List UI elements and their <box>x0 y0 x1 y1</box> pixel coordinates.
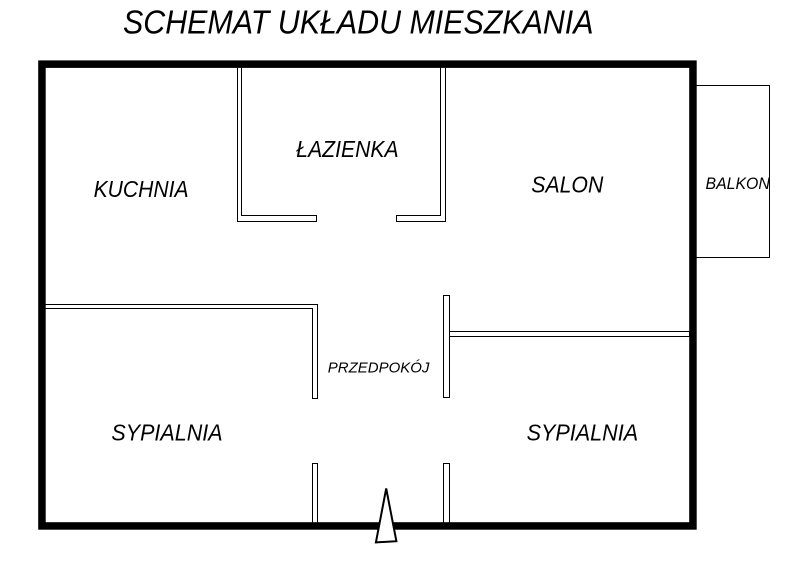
svg-text:SYPIALNIA: SYPIALNIA <box>527 420 639 446</box>
svg-text:SCHEMAT UKŁADU MIESZKANIA: SCHEMAT UKŁADU MIESZKANIA <box>123 4 594 41</box>
svg-text:BALKON: BALKON <box>706 174 771 193</box>
svg-text:KUCHNIA: KUCHNIA <box>94 176 189 202</box>
svg-text:PRZEDPOKÓJ: PRZEDPOKÓJ <box>328 360 430 377</box>
svg-text:SYPIALNIA: SYPIALNIA <box>111 419 222 445</box>
svg-text:SALON: SALON <box>531 172 603 198</box>
svg-text:ŁAZIENKA: ŁAZIENKA <box>296 136 398 162</box>
